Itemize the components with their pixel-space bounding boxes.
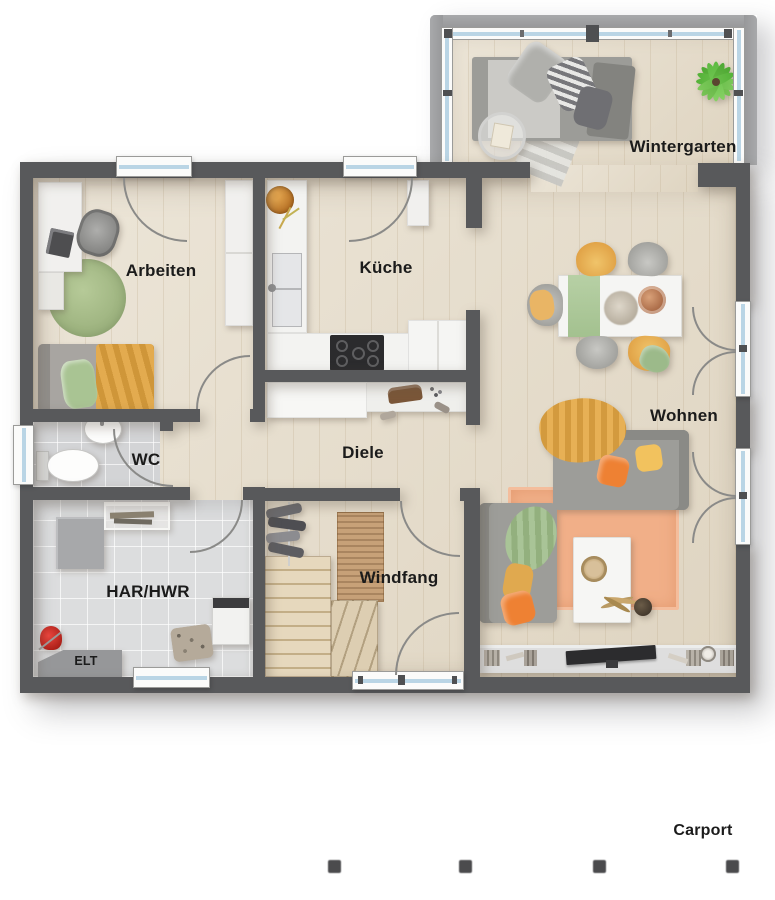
wintergarten-frame-right bbox=[744, 15, 757, 165]
wall-right-middle bbox=[736, 395, 750, 450]
room-label-wintergarten: Wintergarten bbox=[629, 137, 736, 157]
wall-diele-wohnen bbox=[466, 310, 480, 425]
floor-plan: Wintergarten Arbeiten Küche Wohnen Diele… bbox=[0, 0, 775, 900]
glazing-tick bbox=[668, 30, 672, 37]
pillow-yellow bbox=[634, 443, 663, 472]
glazing-tick bbox=[520, 30, 524, 37]
table-centerpiece bbox=[604, 291, 638, 325]
stairs-winder-flight bbox=[331, 600, 378, 677]
window-har bbox=[133, 667, 210, 688]
wall-right-upper bbox=[736, 187, 750, 303]
room-label-wc: WC bbox=[132, 450, 161, 470]
wall-wc-har bbox=[20, 487, 190, 500]
books bbox=[720, 650, 734, 666]
plant-vase bbox=[634, 598, 652, 616]
diele-sideboard-top bbox=[267, 382, 367, 418]
cooktop-burner bbox=[352, 347, 365, 360]
room-label-diele: Diele bbox=[342, 443, 384, 463]
wall-kueche-bottom bbox=[253, 370, 480, 382]
tv-stand bbox=[606, 660, 618, 668]
wall-arbeiten-bottom bbox=[33, 409, 200, 422]
entry-door-mark bbox=[358, 676, 363, 684]
kitchen-sink-divider bbox=[272, 288, 302, 290]
french-door-mark bbox=[739, 345, 747, 352]
wall-right-lower bbox=[736, 543, 750, 677]
wall-top bbox=[20, 162, 530, 178]
desk-return bbox=[38, 272, 64, 310]
wall-arbeiten-kueche bbox=[253, 178, 265, 421]
room-label-kueche: Küche bbox=[360, 258, 413, 278]
window-kueche bbox=[343, 156, 417, 177]
kitchen-faucet bbox=[268, 284, 276, 292]
bed-blanket-yellow bbox=[96, 344, 154, 412]
wardrobe-divider bbox=[226, 252, 252, 254]
entry-door-mark bbox=[398, 675, 405, 685]
entry-door-mark bbox=[452, 676, 457, 684]
carport-post bbox=[593, 860, 606, 873]
cooktop-burner bbox=[367, 355, 379, 367]
books bbox=[686, 650, 701, 666]
dining-chair-gray bbox=[576, 336, 618, 369]
room-label-wohnen: Wohnen bbox=[650, 406, 718, 426]
washing-machine-panel bbox=[213, 598, 249, 608]
glazing-tick bbox=[734, 90, 743, 96]
carport-post bbox=[328, 860, 341, 873]
doormat-windfang bbox=[337, 512, 384, 602]
glazing-tick bbox=[724, 29, 732, 38]
french-door-mark bbox=[739, 492, 747, 499]
glazing-post bbox=[586, 25, 599, 42]
wall-wc-right-stub bbox=[160, 409, 173, 431]
books bbox=[484, 650, 500, 666]
kitchen-sink bbox=[272, 253, 302, 327]
stairs-upper-flight bbox=[265, 556, 331, 677]
wall-kitchen-stub bbox=[466, 178, 482, 228]
room-label-har-hwr: HAR/HWR bbox=[106, 582, 190, 602]
coffee-table-tray bbox=[581, 556, 607, 582]
cooktop-burner bbox=[336, 355, 348, 367]
wall-windfang-wohnen bbox=[464, 488, 480, 677]
window-wc bbox=[13, 425, 34, 485]
wall-arbeiten-bottom-piece bbox=[250, 409, 265, 422]
keys bbox=[428, 385, 446, 397]
bed-headboard bbox=[38, 344, 50, 412]
wall-windfang-top bbox=[265, 488, 400, 501]
window-arbeiten bbox=[116, 156, 192, 177]
table-bowl bbox=[638, 286, 666, 314]
carport-post bbox=[459, 860, 472, 873]
wall-wintergarten-junction bbox=[698, 163, 750, 187]
glazing-tick bbox=[444, 29, 452, 38]
laundry-basket bbox=[170, 623, 214, 662]
dried-plant-fronds bbox=[596, 588, 640, 618]
cooktop-burner bbox=[367, 340, 379, 352]
glass-table-tray bbox=[490, 122, 514, 149]
room-label-elt: ELT bbox=[74, 654, 97, 668]
room-label-arbeiten: Arbeiten bbox=[126, 261, 197, 281]
table-runner bbox=[568, 275, 600, 337]
wall-har-windfang bbox=[253, 487, 265, 677]
storage-box bbox=[56, 517, 104, 569]
desk bbox=[38, 182, 82, 272]
room-label-windfang: Windfang bbox=[360, 568, 439, 588]
wc-toilet-bowl bbox=[47, 449, 99, 482]
kitchen-cabinet-line bbox=[437, 321, 439, 372]
speaker-round bbox=[700, 646, 716, 662]
cooktop-burner bbox=[336, 340, 348, 352]
carport-post bbox=[726, 860, 739, 873]
carport-label: Carport bbox=[673, 822, 732, 840]
glazing-tick bbox=[443, 90, 452, 96]
books bbox=[524, 650, 537, 666]
